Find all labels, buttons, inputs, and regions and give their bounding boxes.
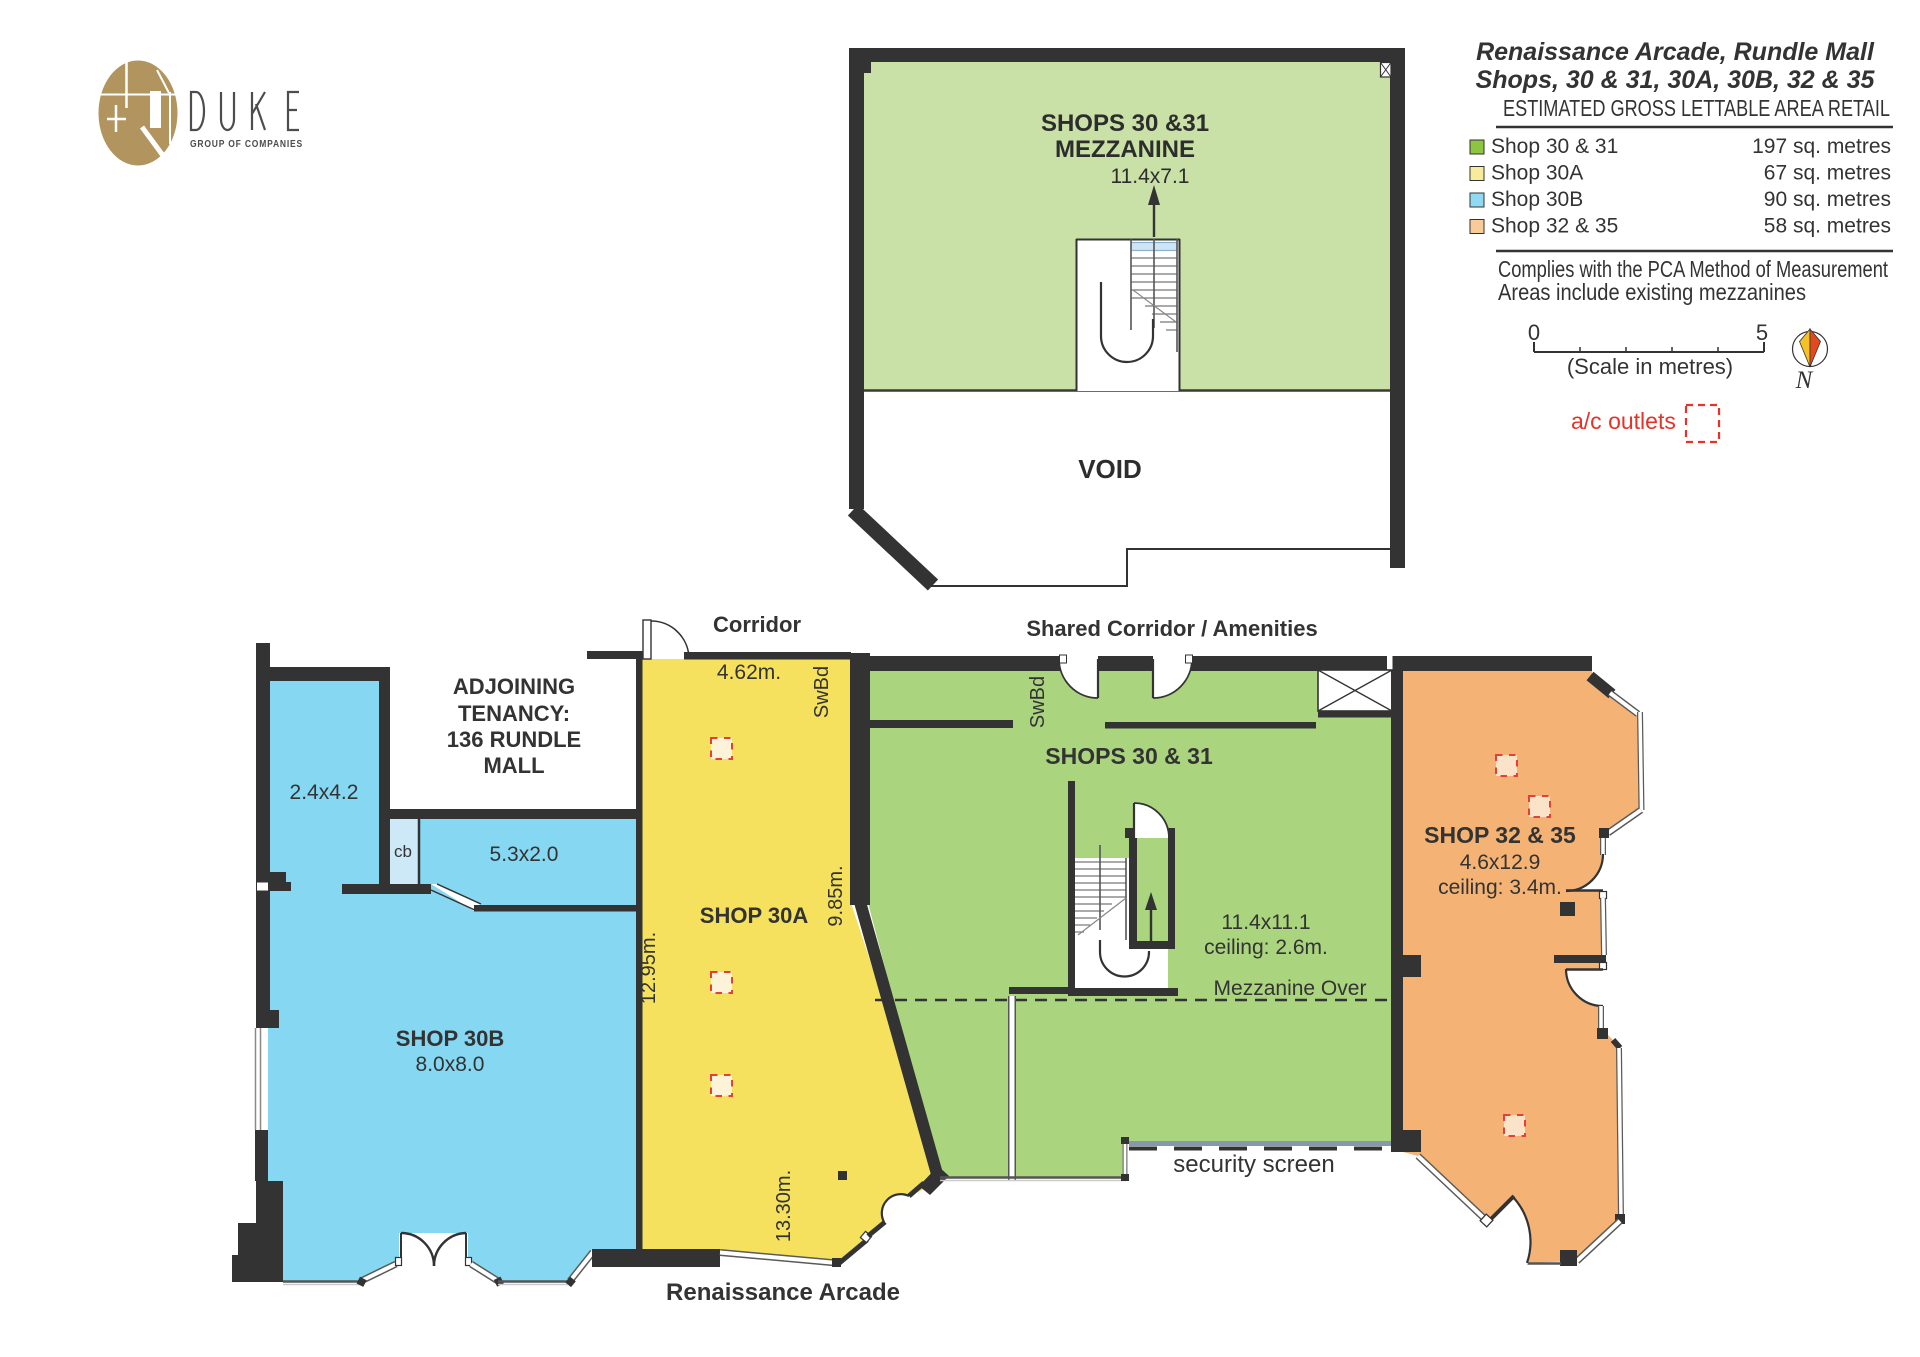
svg-text:cb: cb	[394, 842, 412, 861]
svg-text:ceiling: 3.4m.: ceiling: 3.4m.	[1438, 876, 1562, 899]
svg-text:Shop 30B: Shop 30B	[1491, 188, 1583, 211]
svg-text:Shop 30 & 31: Shop 30 & 31	[1491, 135, 1618, 158]
svg-text:VOID: VOID	[1078, 454, 1142, 484]
svg-text:11.4x11.1: 11.4x11.1	[1221, 911, 1310, 934]
svg-text:Shops, 30 & 31, 30A, 30B, 32 &: Shops, 30 & 31, 30A, 30B, 32 & 35	[1476, 66, 1876, 94]
svg-text:MALL: MALL	[483, 753, 544, 778]
svg-text:4.62m.: 4.62m.	[717, 661, 781, 684]
svg-text:Corridor: Corridor	[713, 612, 801, 637]
svg-text:Renaissance Arcade, Rundle Mal: Renaissance Arcade, Rundle Mall	[1476, 38, 1875, 66]
svg-text:Shared Corridor / Amenities: Shared Corridor / Amenities	[1026, 616, 1317, 641]
svg-text:GROUP OF COMPANIES: GROUP OF COMPANIES	[190, 138, 303, 150]
svg-text:ESTIMATED GROSS LETTABLE AREA: ESTIMATED GROSS LETTABLE AREA RETAIL	[1503, 95, 1890, 121]
svg-text:4.6x12.9: 4.6x12.9	[1460, 851, 1541, 874]
svg-text:197 sq. metres: 197 sq. metres	[1752, 135, 1891, 158]
svg-text:0: 0	[1528, 320, 1540, 345]
svg-text:(Scale in metres): (Scale in metres)	[1567, 354, 1733, 379]
svg-text:5.3x2.0: 5.3x2.0	[490, 843, 559, 866]
svg-text:12.95m.: 12.95m.	[638, 932, 660, 1004]
svg-text:Shop 30A: Shop 30A	[1491, 162, 1583, 185]
svg-text:Mezzanine Over: Mezzanine Over	[1214, 977, 1367, 1000]
svg-text:ADJOINING: ADJOINING	[453, 674, 575, 699]
svg-text:SHOP 30B: SHOP 30B	[396, 1026, 504, 1051]
svg-text:58 sq. metres: 58 sq. metres	[1764, 215, 1891, 238]
svg-text:SHOPS 30 & 31: SHOPS 30 & 31	[1045, 743, 1213, 769]
svg-text:Renaissance Arcade: Renaissance Arcade	[666, 1279, 900, 1306]
svg-text:136 RUNDLE: 136 RUNDLE	[447, 727, 581, 752]
svg-text:SHOPS 30 &31: SHOPS 30 &31	[1041, 110, 1209, 137]
svg-text:8.0x8.0: 8.0x8.0	[416, 1053, 485, 1076]
svg-text:ceiling: 2.6m.: ceiling: 2.6m.	[1204, 936, 1328, 959]
svg-text:13.30m.: 13.30m.	[773, 1170, 795, 1242]
svg-text:SHOP 32 & 35: SHOP 32 & 35	[1424, 822, 1576, 848]
svg-text:11.4x7.1: 11.4x7.1	[1110, 165, 1189, 188]
svg-text:N: N	[1795, 367, 1814, 394]
svg-text:67 sq. metres: 67 sq. metres	[1764, 162, 1891, 185]
svg-text:9.85m.: 9.85m.	[825, 865, 847, 926]
svg-text:TENANCY:: TENANCY:	[458, 701, 570, 726]
svg-text:90 sq. metres: 90 sq. metres	[1764, 188, 1891, 211]
svg-text:MEZZANINE: MEZZANINE	[1055, 136, 1195, 163]
svg-text:security screen: security screen	[1173, 1151, 1334, 1178]
svg-text:Areas include existing mezzani: Areas include existing mezzanines	[1498, 279, 1806, 305]
svg-text:Shop 32 & 35: Shop 32 & 35	[1491, 215, 1618, 238]
svg-text:2.4x4.2: 2.4x4.2	[290, 781, 359, 804]
svg-text:SwBd: SwBd	[811, 666, 833, 718]
svg-text:SHOP 30A: SHOP 30A	[700, 903, 809, 928]
svg-text:5: 5	[1756, 320, 1768, 345]
svg-text:a/c outlets: a/c outlets	[1571, 408, 1676, 434]
svg-text:SwBd: SwBd	[1027, 676, 1049, 728]
